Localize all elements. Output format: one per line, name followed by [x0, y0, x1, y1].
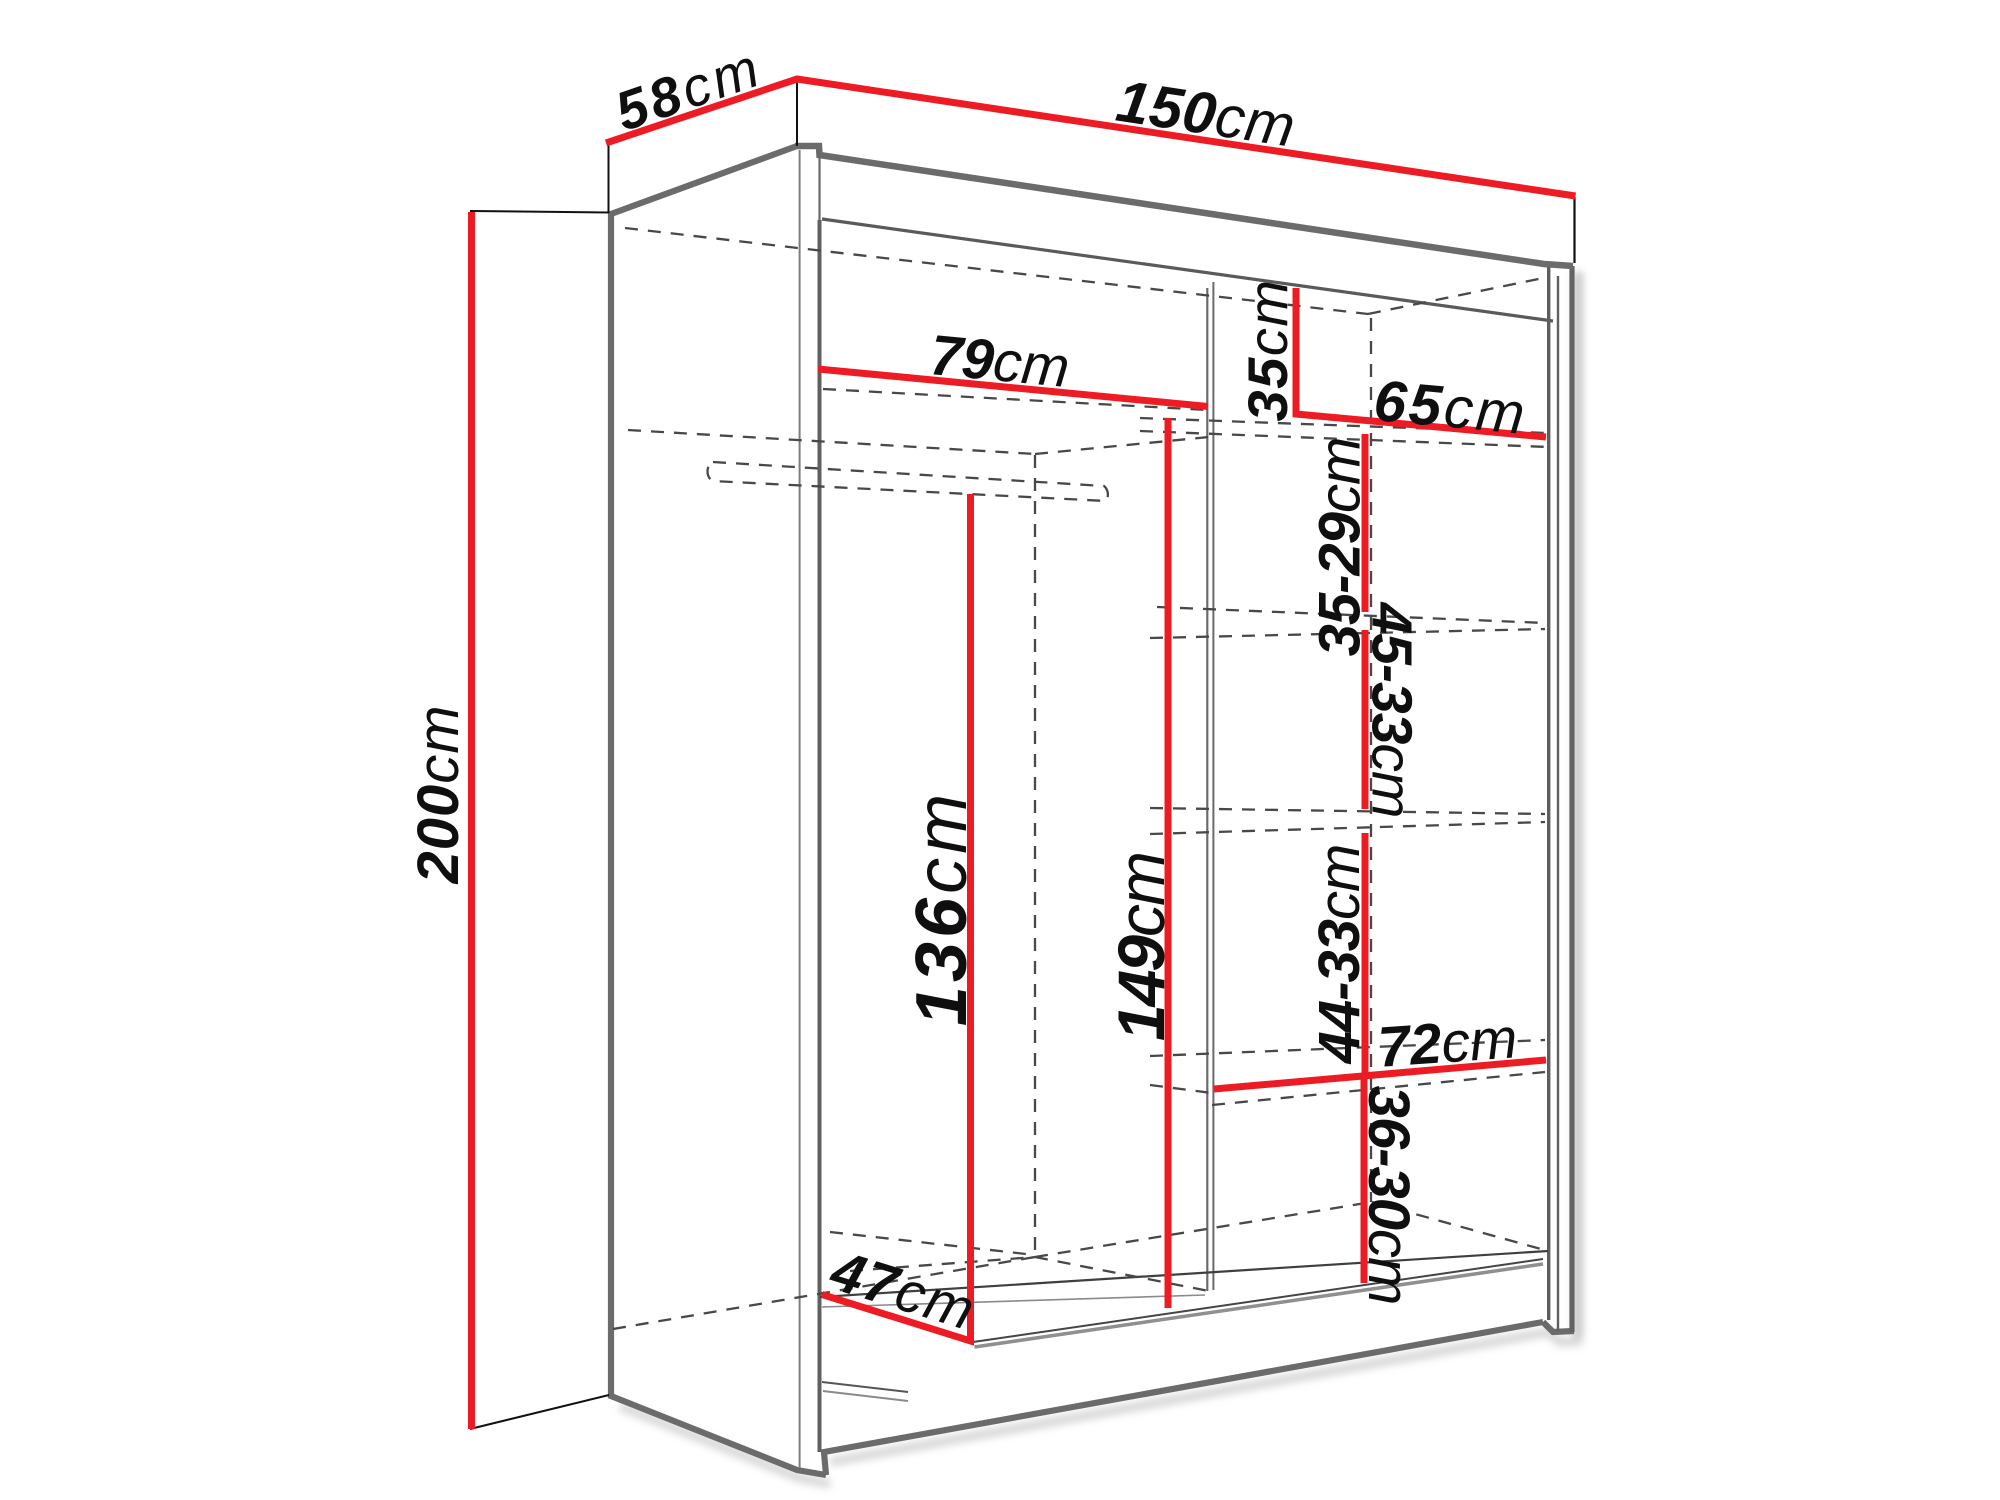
svg-text:79cm: 79cm	[927, 323, 1072, 400]
svg-text:44-33cm: 44-33cm	[1307, 845, 1372, 1065]
svg-text:45-33cm: 45-33cm	[1360, 602, 1424, 818]
svg-text:149cm: 149cm	[1104, 853, 1178, 1041]
svg-text:136cm: 136cm	[902, 790, 982, 1026]
svg-text:72cm: 72cm	[1376, 1006, 1520, 1080]
svg-text:200cm: 200cm	[406, 704, 471, 884]
svg-text:35cm: 35cm	[1236, 279, 1299, 422]
svg-text:36-30cm: 36-30cm	[1356, 1086, 1421, 1305]
